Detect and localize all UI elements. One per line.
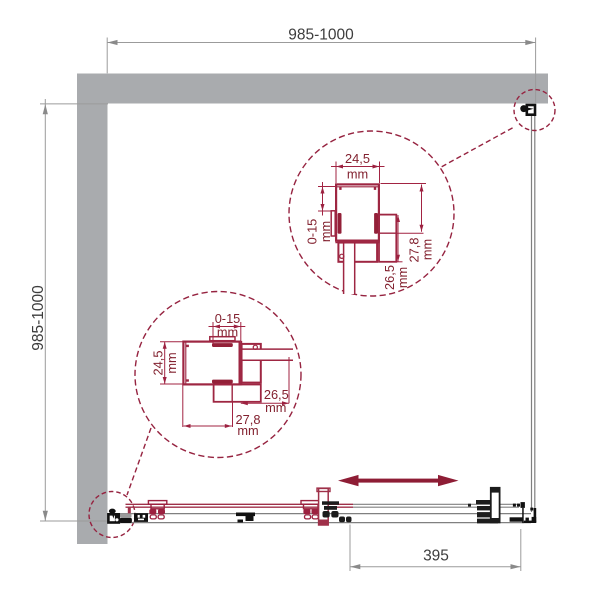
svg-text:395: 395 — [423, 548, 449, 565]
svg-text:mm: mm — [265, 400, 286, 415]
svg-text:985-1000: 985-1000 — [288, 26, 354, 43]
svg-text:mm: mm — [217, 325, 238, 340]
svg-text:mm: mm — [164, 352, 179, 373]
svg-text:mm: mm — [237, 423, 258, 438]
svg-text:mm: mm — [395, 267, 410, 288]
svg-text:985-1000: 985-1000 — [30, 285, 47, 351]
svg-text:mm: mm — [318, 221, 333, 242]
svg-text:mm: mm — [347, 167, 368, 182]
svg-text:24,5: 24,5 — [345, 151, 370, 166]
svg-text:mm: mm — [420, 239, 435, 260]
